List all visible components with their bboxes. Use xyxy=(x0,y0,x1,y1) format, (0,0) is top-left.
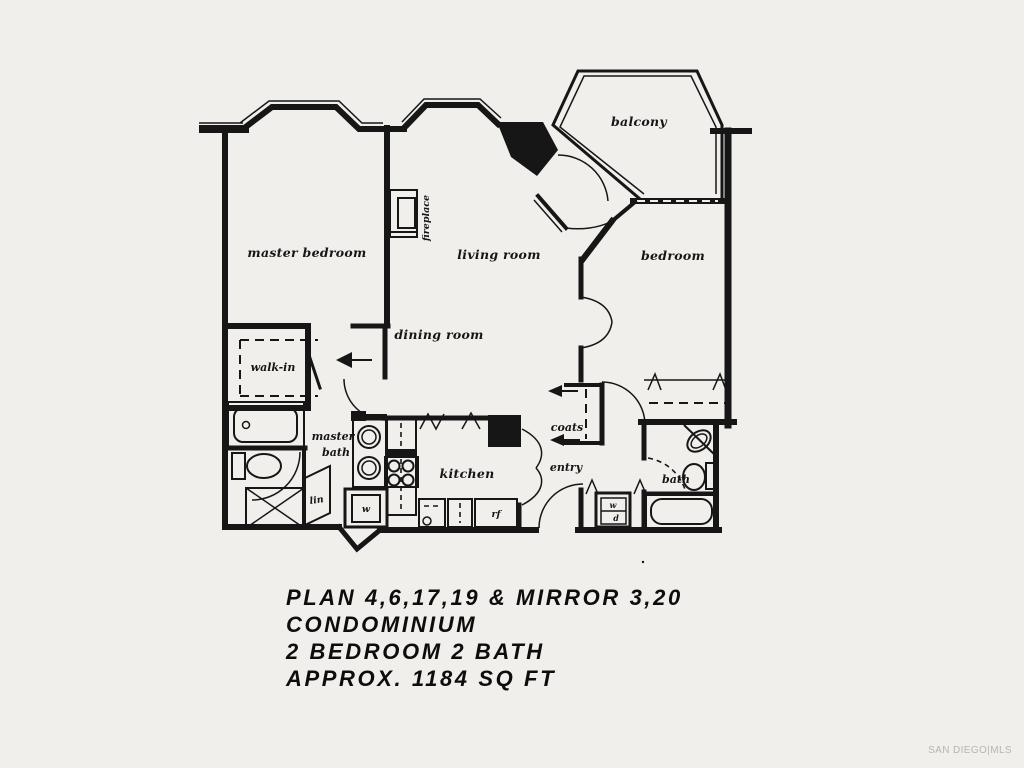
entry-label: entry xyxy=(550,461,584,474)
caption-bed-bath-line: 2 BEDROOM 2 BATH xyxy=(286,638,683,665)
mls-watermark: SAN DIEGO|MLS xyxy=(900,745,1012,756)
bath-label: bath xyxy=(662,473,690,486)
living-bay-window xyxy=(404,105,498,128)
master-bedroom-label: master bedroom xyxy=(247,245,366,260)
walk-in-label: walk-in xyxy=(251,361,296,374)
bedroom-label: bedroom xyxy=(641,248,705,263)
linen-label: lin xyxy=(309,494,325,507)
scanned-floor-plan-page: master bedroom living room dining room b… xyxy=(0,0,1024,768)
coats-label: coats xyxy=(551,421,583,434)
scan-speck xyxy=(642,561,644,563)
balcony-door-leaf xyxy=(538,196,566,228)
master-toilet xyxy=(232,453,281,479)
master-bedroom-door-arc xyxy=(344,379,385,420)
kitchen-sink xyxy=(419,499,445,527)
master-bath-label-line1: master xyxy=(312,430,356,443)
stacked-dryer-label: d xyxy=(613,513,619,523)
kitchen-label: kitchen xyxy=(439,466,494,481)
plan-caption: PLAN 4,6,17,19 & MIRROR 3,20 CONDOMINIUM… xyxy=(286,584,683,692)
toilet-room-door-arc xyxy=(252,452,300,500)
master-bathtub xyxy=(228,402,304,448)
fireplace-label: fireplace xyxy=(421,195,432,242)
caption-plan-line: PLAN 4,6,17,19 & MIRROR 3,20 xyxy=(286,584,683,611)
refrigerator-label: rf xyxy=(491,509,502,520)
balcony-label: balcony xyxy=(611,114,667,129)
dishwasher xyxy=(448,499,472,527)
bath-tub xyxy=(646,495,716,528)
entry-door-arc xyxy=(539,484,583,528)
corner-wall-wedge xyxy=(497,122,558,176)
stacked-washer-label: w xyxy=(610,500,618,510)
double-vanity xyxy=(353,415,386,487)
door-swing-arrow xyxy=(336,352,352,368)
caption-type-line: CONDOMINIUM xyxy=(286,611,683,638)
hall-door-arc xyxy=(602,382,645,425)
dining-room-label: dining room xyxy=(394,327,483,342)
fireplace xyxy=(390,190,417,237)
kitchen-corner-wall xyxy=(488,415,521,447)
master-bay-window xyxy=(243,107,404,129)
master-bath-label-line2: bath xyxy=(322,446,350,459)
caption-area-line: APPROX. 1184 SQ FT xyxy=(286,665,683,692)
living-room-label: living room xyxy=(457,247,540,262)
balcony-outline xyxy=(553,71,722,201)
washer-label: w xyxy=(362,504,371,515)
